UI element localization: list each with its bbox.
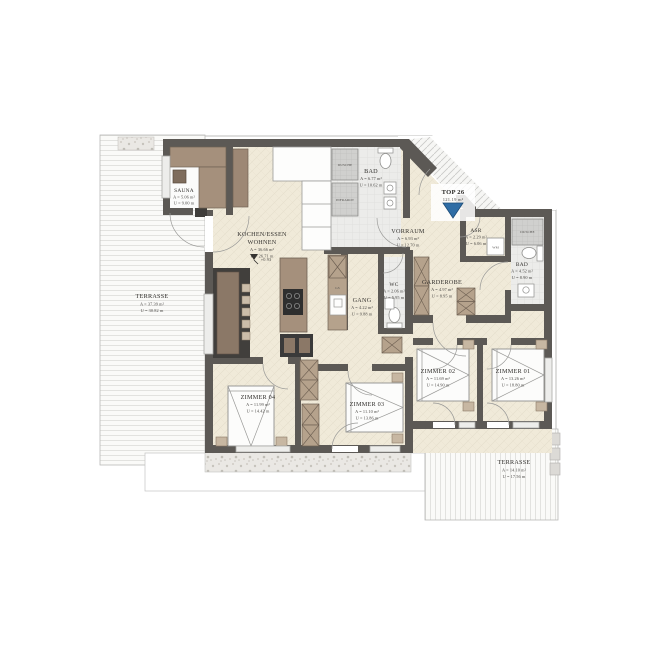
room-perimeter-terrasse-sued: U = 17.56 m: [503, 474, 526, 479]
nightstand: [463, 402, 474, 411]
label-dusche-right: DUSCHE: [520, 230, 535, 234]
room-perimeter-vorraum: U = 12.70 m: [397, 243, 420, 248]
room-name-asr: ASR: [470, 228, 481, 234]
room-area-sauna: A = 5.06 m²: [173, 195, 195, 200]
room-name-bad-right: BAD: [516, 262, 528, 268]
wall: [324, 247, 410, 254]
cooktop: [283, 289, 303, 315]
sauna-bench: [199, 167, 226, 208]
wall: [466, 315, 511, 323]
room-perimeter-zimmer03: U = 13.86 m: [356, 416, 379, 421]
sauna-heater: [173, 170, 186, 183]
edge-block: [550, 463, 560, 475]
toilet-icon: [522, 248, 536, 259]
gravel-strip-south: [205, 450, 411, 472]
room-area-gang: A = 4.22 m²: [351, 305, 373, 310]
room-perimeter-sauna: U = 9.00 m: [174, 201, 195, 206]
room-area-bad-top: A = 6.77 m²: [360, 176, 382, 181]
toilet-icon: [389, 308, 400, 323]
wall: [226, 147, 233, 215]
nightstand: [276, 437, 287, 446]
gravel-patch-top: [118, 137, 154, 150]
room-name-zimmer01: ZIMMER 01: [496, 368, 531, 375]
room-area-garderobe: A = 4.97 m²: [431, 287, 453, 292]
door-opening: [433, 422, 455, 428]
toilet-icon: [380, 154, 391, 169]
unit-label: TOP 26 121.19 m²: [442, 189, 465, 202]
unit-number: TOP 26: [442, 189, 465, 196]
toilet-tank: [378, 148, 393, 153]
wall: [477, 345, 483, 428]
room-name-bad-top: BAD: [364, 168, 378, 175]
window: [513, 422, 539, 428]
wall: [460, 256, 511, 262]
door-opening: [205, 216, 213, 252]
room-area-vorraum: A = 6.93 m²: [397, 236, 419, 241]
room-area-wc: A = 2.06 m²: [383, 289, 405, 294]
oven-cell: [330, 295, 346, 315]
room-name-vorraum: VORRAUM: [391, 228, 425, 235]
dining-chair: [284, 338, 295, 353]
nightstand: [536, 402, 547, 411]
wall: [413, 338, 433, 345]
room-area-wohnen: A = 36.66 m²: [250, 247, 275, 252]
shelf: [242, 320, 250, 328]
room-name-sauna: SAUNA: [174, 188, 194, 194]
wall: [413, 315, 433, 323]
room-name-zimmer04: ZIMMER 04: [241, 394, 276, 401]
room-area-terrasse-west: A = 37.39 m²: [140, 302, 165, 307]
kitchen-counter: [273, 147, 331, 181]
wall: [378, 254, 384, 334]
door-opening: [487, 422, 509, 428]
window: [236, 446, 290, 452]
room-area-zimmer03: A = 11.10 m²: [355, 409, 379, 414]
room-perimeter-wc: U = 5.95 m: [384, 295, 405, 300]
kitchen-tall-units: [302, 181, 331, 250]
wardrobe-cabinet: [233, 149, 248, 207]
room-perimeter-bad-right: U = 8.90 m: [512, 275, 533, 280]
room-perimeter-asr: U = 6.06 m: [466, 241, 487, 246]
room-perimeter-bad-top: U = 10.62 m: [360, 183, 383, 188]
wall: [405, 250, 413, 334]
toilet-tank: [387, 323, 402, 328]
shelf: [242, 332, 250, 340]
bed-zimmer01: [492, 349, 544, 401]
window: [162, 156, 170, 198]
wall: [213, 357, 263, 364]
room-perimeter-terrasse-west: U = 30.82 m: [141, 308, 164, 313]
room-area-asr: A = 2.29 m²: [465, 235, 487, 240]
nightstand: [536, 340, 547, 349]
floor-plan-page: SAUNA A = 5.06 m² U = 9.00 m KOCHEN/ESSE…: [0, 0, 660, 660]
label-wm: WM: [492, 246, 499, 250]
room-area-zimmer04: A = 11.99 m²: [246, 402, 270, 407]
nightstand: [216, 437, 227, 446]
room-perimeter-zimmer01: U = 18.80 m: [502, 383, 525, 388]
washbasin: [384, 182, 396, 194]
room-name-zimmer02: ZIMMER 02: [421, 368, 456, 375]
sauna-bench: [170, 147, 226, 167]
wall: [163, 139, 403, 147]
dining-chair: [299, 338, 310, 353]
level-marker: +0.93: [261, 257, 271, 262]
room-perimeter-zimmer02: U = 14.90 m: [427, 383, 450, 388]
window: [459, 422, 475, 428]
room-perimeter-zimmer04: U = 14.42 m: [247, 409, 270, 414]
room-name-wc: WC: [389, 282, 398, 288]
room-name-zimmer03: ZIMMER 03: [350, 401, 385, 408]
wall: [505, 304, 544, 311]
room-area-terrasse-sued: A = 14.10 m²: [502, 468, 527, 473]
sideboard-wood: [217, 272, 239, 354]
unit-area: 121.19 m²: [443, 197, 464, 202]
nightstand: [392, 434, 403, 443]
nightstand: [463, 340, 474, 349]
door-opening: [332, 446, 358, 452]
room-name-gang: GANG: [353, 297, 372, 304]
room-name-terrasse-sued: TERRASSE: [498, 459, 531, 466]
bed-zimmer02: [417, 349, 469, 401]
room-name-terrasse-west: TERRASSE: [136, 293, 169, 300]
washbasin: [518, 284, 534, 297]
label-dusche-top: DUSCHE: [338, 163, 353, 167]
wall: [405, 357, 413, 453]
room-area-zimmer01: A = 13.26 m²: [501, 376, 526, 381]
wall: [460, 217, 466, 262]
shelf: [242, 308, 250, 316]
room-perimeter-gang: U = 9.88 m: [352, 312, 373, 317]
room-area-bad-right: A = 4.52 m²: [511, 269, 533, 274]
room-name-wohnen-2: WOHNEN: [248, 239, 277, 246]
shelf: [242, 284, 250, 292]
window: [545, 358, 552, 402]
room-name-wohnen-1: KOCHEN/ESSEN: [237, 231, 287, 238]
window: [204, 294, 213, 354]
washbasin: [384, 197, 396, 209]
nightstand: [392, 373, 403, 382]
floor-plan-drawing: SAUNA A = 5.06 m² U = 9.00 m KOCHEN/ESSE…: [0, 0, 660, 660]
wall: [403, 147, 410, 218]
wall: [505, 217, 511, 262]
wall: [505, 290, 511, 315]
window: [370, 446, 400, 452]
room-name-garderobe: GARDEROBE: [422, 279, 462, 286]
wall: [163, 208, 193, 215]
toilet-tank: [537, 246, 543, 261]
label-infrarot: INFRAROT: [336, 198, 355, 202]
wall: [372, 364, 405, 371]
room-area-zimmer02: A = 11.69 m²: [426, 376, 450, 381]
room-perimeter-garderobe: U = 8.95 m: [432, 294, 453, 299]
shelf: [242, 296, 250, 304]
label-gs: GS: [335, 286, 340, 290]
